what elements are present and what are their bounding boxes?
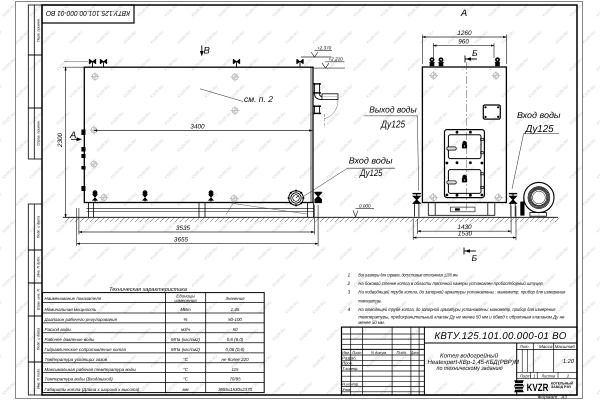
svg-text:Рабочее давление воды: Рабочее давление воды <box>45 337 95 342</box>
svg-text:не более 220: не более 220 <box>221 357 249 362</box>
svg-text:0.000: 0.000 <box>359 203 371 208</box>
svg-text:МПа (кгс/см2): МПа (кгс/см2) <box>171 347 201 352</box>
svg-text:ЗАВОД РЭП: ЗАВОД РЭП <box>551 385 572 389</box>
svg-text:0,06 (0,6): 0,06 (0,6) <box>226 347 246 352</box>
svg-text:°С: °С <box>183 377 189 382</box>
svg-text:Б: Б <box>472 48 478 58</box>
svg-text:А: А <box>460 8 467 19</box>
svg-text:3655: 3655 <box>174 237 189 244</box>
svg-text:1: 1 <box>533 373 535 378</box>
svg-text:%: % <box>184 317 188 322</box>
svg-text:50-100: 50-100 <box>228 317 242 322</box>
svg-text:3400: 3400 <box>190 124 205 131</box>
svg-text:3: 3 <box>348 290 351 296</box>
svg-text:115: 115 <box>231 367 239 372</box>
svg-text:Расход воды: Расход воды <box>45 327 72 332</box>
svg-text:Все размеры для справок, допус: Все размеры для справок, допустимые откл… <box>358 273 458 279</box>
svg-text:Лит.: Лит. <box>519 344 530 349</box>
svg-text:Температура воды (Вход/выход): Температура воды (Вход/выход) <box>45 377 114 382</box>
svg-text:2: 2 <box>347 281 351 287</box>
svg-text:Лист: Лист <box>519 373 531 378</box>
svg-text:Ду125: Ду125 <box>380 119 405 130</box>
svg-text:1: 1 <box>348 273 351 279</box>
svg-text:Габариты котла (Длина х ширина: Габариты котла (Длина х ширина х высота) <box>45 387 140 392</box>
svg-text:м3/ч: м3/ч <box>181 327 191 332</box>
svg-text:Выход воды: Выход воды <box>369 105 417 115</box>
svg-text:Инв. N дубл.: Инв. N дубл. <box>37 256 41 277</box>
svg-text:А3: А3 <box>560 394 567 399</box>
svg-text:измерения: измерения <box>174 298 197 303</box>
svg-text:температуры.: температуры. <box>358 299 382 304</box>
svg-text:3655х1530х2370: 3655х1530х2370 <box>218 387 253 392</box>
svg-text:Гидравлическое сопротивление к: Гидравлическое сопротивление котла <box>45 347 127 352</box>
svg-text:°С: °С <box>183 367 189 372</box>
svg-text:70/95: 70/95 <box>229 377 241 382</box>
svg-text:Максимальная рабочая температу: Максимальная рабочая температура воды <box>45 367 137 372</box>
svg-text:На подводящей трубе котла, до: На подводящей трубе котла, до запорной а… <box>358 290 565 296</box>
svg-text:+2.370: +2.370 <box>317 46 332 51</box>
svg-text:менее 50 мм.: менее 50 мм. <box>358 320 385 326</box>
svg-text:3535: 3535 <box>176 225 191 232</box>
svg-text:МПа (кгс/см2): МПа (кгс/см2) <box>171 337 201 342</box>
svg-text:по техническому заданию: по техническому заданию <box>437 365 503 372</box>
svg-text:Изм.: Изм. <box>342 350 350 355</box>
svg-text:Разраб.: Разраб. <box>342 355 356 360</box>
svg-text:960: 960 <box>458 39 469 46</box>
svg-text:Взам. инв. N: Взам. инв. N <box>37 289 41 310</box>
svg-text:2300: 2300 <box>57 132 64 148</box>
svg-text:Вход воды: Вход воды <box>349 155 393 165</box>
svg-text:Т.контр.: Т.контр. <box>342 366 358 371</box>
svg-text:Наименование показателя: Наименование показателя <box>45 296 102 301</box>
svg-text:В: В <box>204 46 211 57</box>
svg-text:Масса: Масса <box>539 344 553 349</box>
svg-text:КВТУ.125.101.00.000-01 ВО: КВТУ.125.101.00.000-01 ВО <box>46 9 130 18</box>
svg-text:1530: 1530 <box>458 231 473 238</box>
svg-text:Техническая характеристика: Техническая характеристика <box>109 287 187 293</box>
svg-text:0,6 (6,0): 0,6 (6,0) <box>227 337 244 342</box>
svg-text:Формат: Формат <box>538 394 558 399</box>
svg-text:1:20: 1:20 <box>563 358 575 365</box>
svg-text:Справ. примен.: Справ. примен. <box>37 120 41 146</box>
svg-text:Температура уходящих газов: Температура уходящих газов <box>45 357 108 362</box>
svg-text:Б: Б <box>472 253 478 263</box>
svg-text:KVZR: KVZR <box>527 382 549 394</box>
svg-text:Дата: Дата <box>411 350 419 355</box>
svg-text:мм: мм <box>182 387 188 392</box>
svg-text:Подп.: Подп. <box>397 350 408 355</box>
svg-text:Перв. примен.: Перв. примен. <box>37 18 41 42</box>
svg-text:Инв. N подл.: Инв. N подл. <box>37 368 41 389</box>
svg-text:На отводящей трубе котла, до з: На отводящей трубе котла, до запорной ар… <box>358 307 555 313</box>
svg-text:Вход воды: Вход воды <box>517 110 561 120</box>
svg-text:температуры, предохранительный: температуры, предохранительный клапан Ду… <box>358 314 564 320</box>
svg-text:КВТУ.125.101.00.000-01 ВО: КВТУ.125.101.00.000-01 ВО <box>434 331 566 342</box>
svg-text:Диапазон рабочего регулировани: Диапазон рабочего регулирования <box>44 317 118 322</box>
svg-text:МВт: МВт <box>180 307 191 312</box>
svg-text:+2.210: +2.210 <box>329 57 344 62</box>
svg-text:N докум.: N докум. <box>371 350 387 355</box>
svg-text:Ду125: Ду125 <box>359 167 383 178</box>
svg-text:Номинальная мощность: Номинальная мощность <box>45 307 98 312</box>
svg-text:Значение: Значение <box>225 296 245 301</box>
svg-text:Н.контр.: Н.контр. <box>342 382 359 387</box>
svg-text:Пров.: Пров. <box>342 361 353 366</box>
svg-text:Подп. и дата: Подп. и дата <box>37 328 41 351</box>
svg-text:1260: 1260 <box>457 30 472 37</box>
svg-text:Утв.: Утв. <box>342 387 351 392</box>
svg-text:°С: °С <box>183 357 189 362</box>
svg-text:Подп. и дата: Подп. и дата <box>37 216 41 239</box>
svg-text:Листов: Листов <box>541 373 556 378</box>
svg-text:4: 4 <box>348 307 351 313</box>
svg-text:На боковой стенке котла в обла: На боковой стенке котла в области топочн… <box>358 281 543 287</box>
svg-text:50: 50 <box>233 327 238 332</box>
svg-text:Масштаб: Масштаб <box>555 344 576 349</box>
svg-text:см. п. 2: см. п. 2 <box>244 94 273 104</box>
svg-text:1,45: 1,45 <box>231 307 240 312</box>
svg-text:Лист: Лист <box>351 350 362 355</box>
